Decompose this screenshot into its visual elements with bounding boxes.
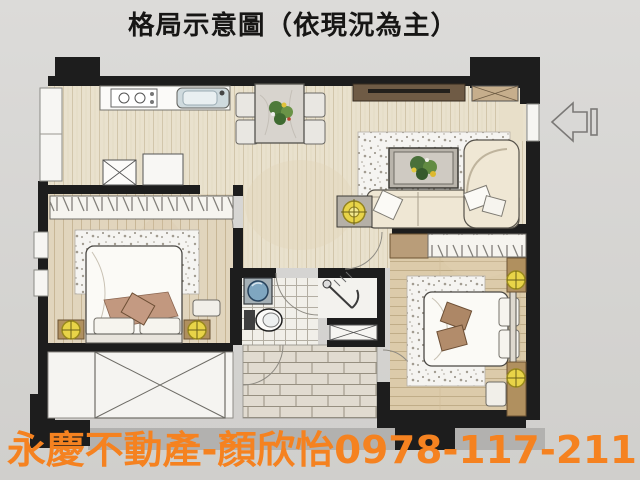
page-title: 格局示意圖（依現況為主） — [128, 10, 458, 41]
wall-entry-corner — [520, 88, 540, 104]
wardrobe-left-hangers — [50, 196, 233, 219]
floorplan-canvas: 格局示意圖（依現況為主） — [0, 0, 640, 480]
balcony — [48, 352, 233, 418]
lamp-icon-right-1 — [507, 271, 525, 289]
entry-door-panel — [527, 104, 539, 141]
lamp-icon-left-1 — [62, 321, 80, 339]
sink-basin — [183, 91, 217, 105]
bedroom-right-stool — [486, 382, 506, 406]
tv-icon — [368, 89, 450, 93]
bedroom-left-stool — [193, 300, 220, 316]
stove-knob-2 — [150, 100, 154, 104]
wall-bedroom-left-bottom — [38, 343, 233, 352]
wall-corridor-a — [233, 185, 243, 196]
window-left-1 — [34, 232, 48, 258]
wall-corridor-b — [233, 228, 243, 268]
kitchen-island — [143, 154, 183, 185]
floor-plan — [30, 57, 540, 450]
watermark-text: 永慶不動產-顏欣怡0978-117-211 — [7, 428, 637, 472]
wardrobe-right-hangers — [428, 234, 526, 257]
hallway-brick-floor — [243, 345, 377, 418]
window-left-2 — [34, 270, 48, 296]
dining-chair-3 — [303, 93, 325, 117]
wall-left-mid — [38, 258, 48, 270]
lamp-icon-right-2 — [507, 369, 525, 387]
wall-washer-bottom — [327, 340, 380, 347]
wall-shower-right — [377, 268, 385, 347]
stove-icon — [111, 89, 157, 107]
toilet-tank — [244, 310, 255, 330]
lamp-icon-left-2 — [188, 321, 206, 339]
wall-shower-top — [318, 268, 385, 278]
wood-strip — [390, 234, 428, 258]
bed-left-pillow-1 — [94, 318, 134, 334]
stove-knob-1 — [150, 92, 154, 96]
bed-left-headboard — [86, 334, 182, 343]
floorplan-photo: 格局示意圖（依現況為主） — [0, 0, 640, 480]
wall-bathroom-left — [230, 268, 242, 345]
washbasin-icon — [248, 281, 268, 301]
wall-right — [526, 141, 540, 420]
bed-right-headboard — [510, 292, 516, 366]
toilet-bowl — [263, 313, 279, 327]
dining-chair-4 — [303, 120, 325, 144]
wall-washer-top — [327, 318, 380, 325]
wall-left-upper — [38, 181, 48, 232]
bed-right-duvet — [424, 292, 508, 366]
dining-area — [236, 84, 325, 144]
wall-topright-block — [470, 57, 540, 88]
faucet-icon — [220, 91, 225, 96]
wall-bedroom-left-top — [40, 185, 200, 194]
